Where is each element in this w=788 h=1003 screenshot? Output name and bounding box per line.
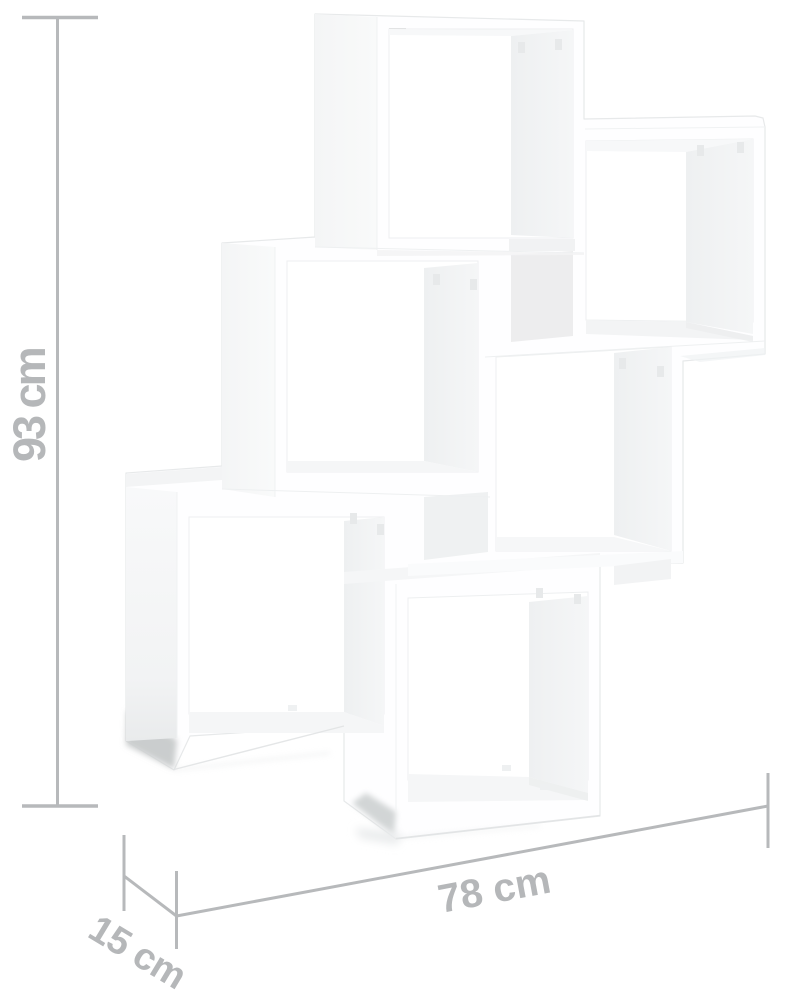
svg-text:93 cm: 93 cm: [4, 348, 55, 462]
svg-text:78 cm: 78 cm: [435, 858, 555, 922]
